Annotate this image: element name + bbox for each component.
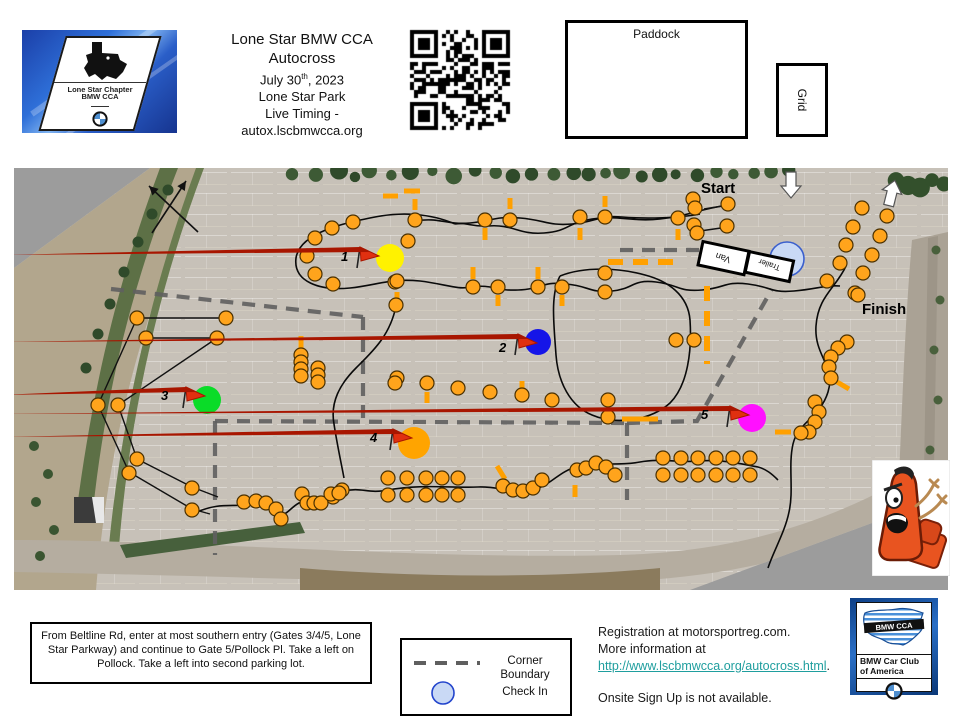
- grid-label: Grid: [795, 89, 809, 112]
- qr-code: [408, 28, 512, 132]
- grid-box: Grid: [776, 63, 828, 137]
- aerial-photo: [14, 168, 948, 590]
- registration-line1: Registration at motorsportreg.com.: [598, 624, 854, 641]
- bmwcca-logo: BMW CCA BMW Car Club of America: [850, 598, 938, 695]
- usa-map-graphic: BMW CCA: [857, 603, 931, 649]
- bmwcca-line1: BMW Car Club: [857, 654, 931, 667]
- texas-silhouette: [56, 40, 144, 80]
- legend-corner-boundary-label: Corner Boundary: [488, 654, 562, 682]
- legend-check-in-label: Check In: [488, 685, 562, 699]
- club-logo-parallelogram: Lone Star Chapter BMW CCA: [38, 36, 161, 131]
- bmw-roundel-icon: [884, 681, 904, 701]
- live-timing-label: Live Timing -: [212, 105, 392, 122]
- club-logo: Lone Star Chapter BMW CCA: [22, 30, 177, 133]
- station-2-number: 2: [498, 340, 507, 355]
- station-5-number: 5: [701, 407, 709, 422]
- start-label: Start: [701, 180, 735, 197]
- onsite-signup-text: Onsite Sign Up is not available.: [598, 690, 854, 707]
- legend-box: Corner Boundary Check In: [400, 638, 572, 716]
- paddock-box: Paddock: [565, 20, 748, 139]
- live-timing-url: autox.lscbmwcca.org: [212, 122, 392, 139]
- course-map: 12345 Van Trailer Start Finish: [14, 168, 948, 590]
- registration-block: Registration at motorsportreg.com. More …: [598, 624, 854, 707]
- registration-line2: More information at: [598, 641, 854, 658]
- registration-link[interactable]: http://www.lscbmwcca.org/autocross.html: [598, 659, 827, 673]
- directions-text: From Beltline Rd, enter at most southern…: [41, 630, 361, 670]
- bmw-roundel-icon: [91, 106, 109, 127]
- paddock-label: Paddock: [568, 27, 745, 41]
- club-logo-line2: BMW CCA: [54, 92, 146, 101]
- corner-boundary-sample: [412, 658, 482, 668]
- registration-link-suffix: .: [827, 659, 830, 673]
- event-title-line2: Autocross: [212, 49, 392, 68]
- event-date: July 30th, 2023: [212, 68, 392, 88]
- cone-mascot-sticker: [872, 460, 950, 576]
- bmwcca-line2: of America: [857, 667, 931, 677]
- event-title-block: Lone Star BMW CCA Autocross July 30th, 2…: [212, 30, 392, 139]
- station-3-number: 3: [161, 388, 169, 403]
- station-4-number: 4: [369, 430, 378, 445]
- directions-box: From Beltline Rd, enter at most southern…: [30, 622, 372, 684]
- event-venue: Lone Star Park: [212, 88, 392, 105]
- finish-label: Finish: [862, 301, 906, 318]
- event-title-line1: Lone Star BMW CCA: [212, 30, 392, 49]
- check-in-sample: [428, 678, 458, 708]
- station-1-number: 1: [341, 249, 348, 264]
